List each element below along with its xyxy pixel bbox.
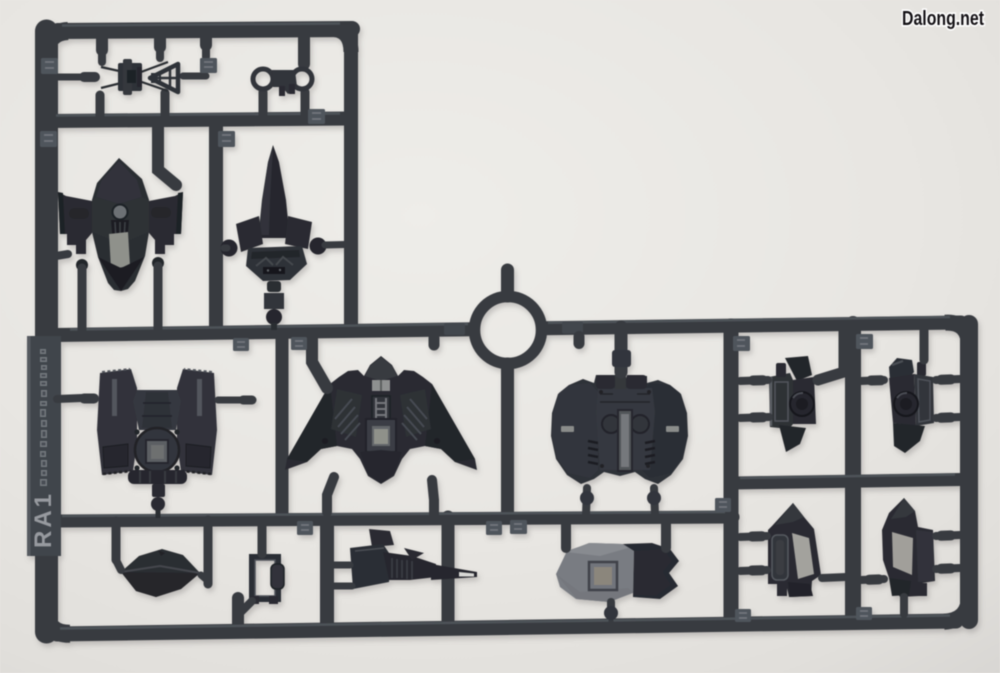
svg-text:RA1: RA1 xyxy=(30,491,57,548)
svg-text:Dalong.net: Dalong.net xyxy=(902,8,984,30)
